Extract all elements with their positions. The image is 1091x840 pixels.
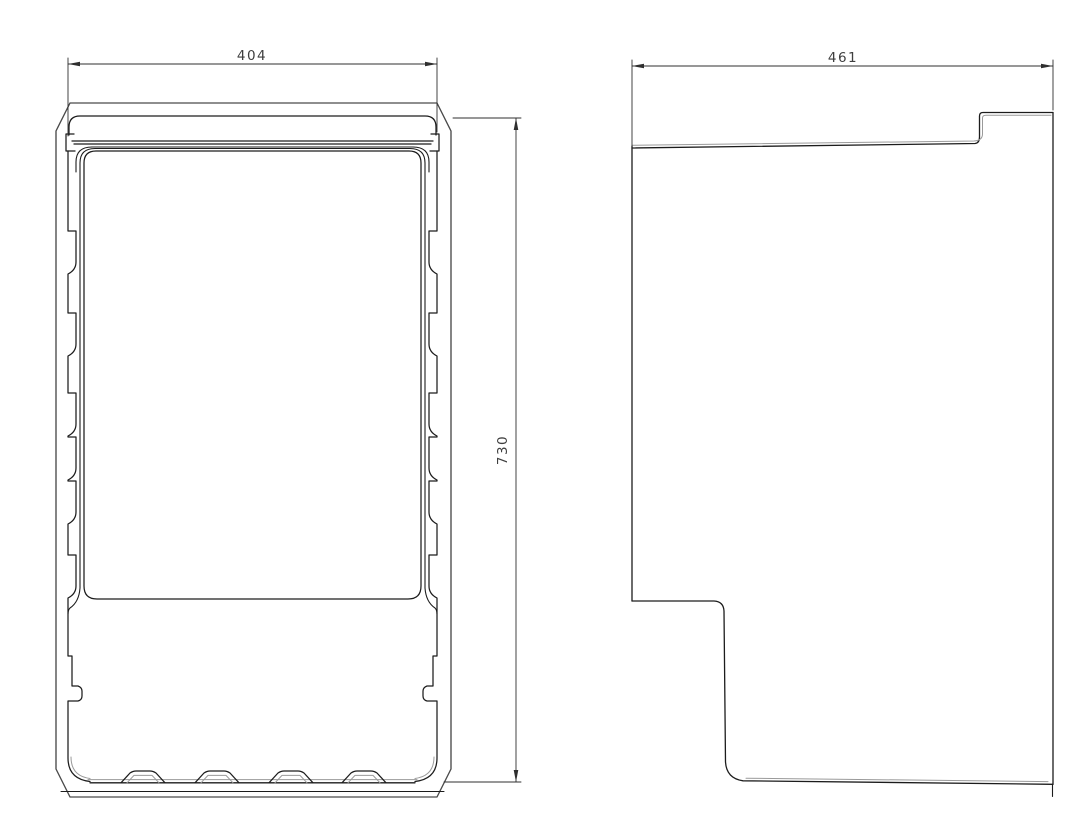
technical-drawing: 404 730 461: [0, 0, 1091, 840]
rib-1: [121, 771, 165, 783]
corner-tab-left: [66, 134, 75, 151]
top-profile-thickness: [632, 115, 1051, 145]
top-band: [69, 116, 436, 135]
dim-depth-side-label: 461: [828, 50, 858, 66]
dim-height-front-label: 730: [495, 435, 511, 465]
drawing-sheet: 404 730 461: [0, 0, 1091, 840]
flange-mid-line: [80, 149, 425, 589]
outer-frame: [56, 103, 451, 797]
recess-and-bottom: [632, 601, 1053, 784]
dim-461-arrow-right: [1041, 64, 1053, 69]
dim-height-front: 730: [444, 118, 521, 782]
front-view: [56, 103, 451, 797]
back-wall-panel: [84, 151, 421, 599]
bottom-ribs: [121, 771, 386, 783]
side-view: [632, 113, 1053, 797]
corner-tab-right: [430, 134, 439, 151]
side-wall-left-notched: [68, 151, 90, 782]
rib-2: [195, 771, 239, 783]
dim-404-arrow-left: [68, 62, 80, 67]
side-wall-right-notched: [415, 151, 437, 782]
rib-3: [269, 771, 313, 783]
dim-730-arrow-top: [514, 118, 519, 130]
dim-461-arrow-left: [632, 64, 644, 69]
rib-4: [342, 771, 386, 783]
dim-404-arrow-right: [425, 62, 437, 67]
dim-depth-side: 461: [632, 50, 1053, 146]
dimensions: 404 730 461: [68, 48, 1053, 782]
dim-730-arrow-bottom: [514, 770, 519, 782]
dim-width-front: 404: [68, 48, 437, 136]
dim-width-front-label: 404: [237, 48, 267, 64]
